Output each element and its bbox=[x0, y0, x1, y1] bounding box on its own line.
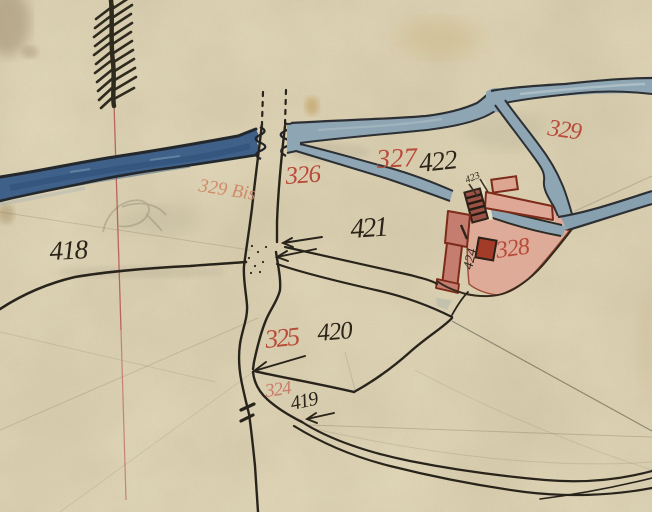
svg-text:327: 327 bbox=[375, 142, 420, 174]
svg-text:421: 421 bbox=[349, 212, 387, 245]
svg-text:329: 329 bbox=[545, 115, 583, 146]
svg-text:324: 324 bbox=[263, 377, 294, 402]
svg-text:418: 418 bbox=[49, 234, 90, 266]
svg-text:328: 328 bbox=[493, 233, 531, 264]
svg-text:326: 326 bbox=[284, 161, 323, 191]
svg-text:325: 325 bbox=[263, 321, 302, 354]
svg-text:422: 422 bbox=[417, 144, 458, 178]
svg-text:420: 420 bbox=[316, 317, 354, 347]
